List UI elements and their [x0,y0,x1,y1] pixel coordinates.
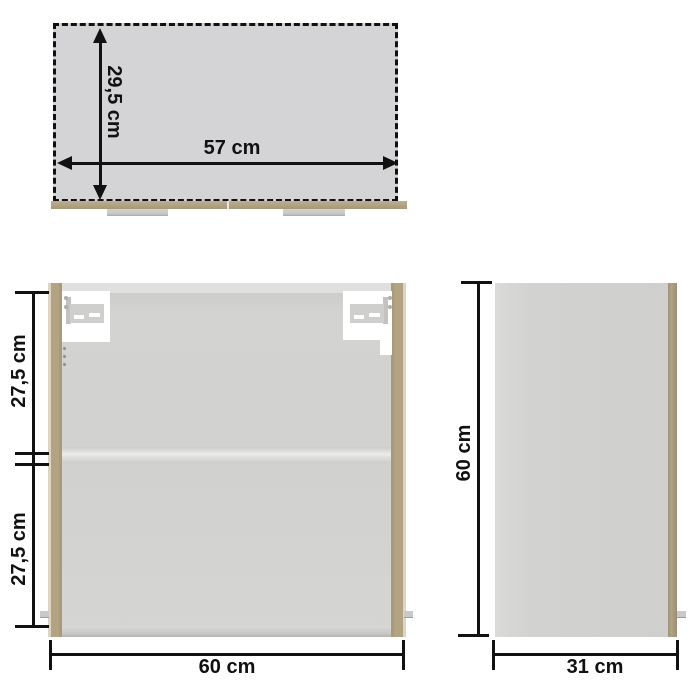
width-arrow-line [69,162,385,165]
dim-tick [676,640,679,670]
front-top-edge [62,283,391,293]
shelf-pin-hole [63,355,66,358]
hinge-cutout-right-notch [380,340,392,355]
mount-peg-side [677,611,686,618]
dim-tick [15,291,49,294]
front-width-label: 60 cm [181,657,273,677]
screw-icon [64,305,68,309]
hinge-slot [369,313,380,317]
front-shelf [62,447,391,463]
depth-arrow-down-head [93,185,107,200]
screw-icon [388,296,392,300]
front-bottom-panel [62,626,391,637]
side-panel-front-edge [668,283,677,637]
dim-tick [15,452,49,455]
screw-icon [64,296,68,300]
top-view-front-edge-gap [227,201,229,209]
top-view-front-edge [51,201,407,209]
shelf-pin-hole [63,363,66,366]
diagram-canvas: 29,5 cm 57 cm [0,0,700,700]
mount-peg-right [404,611,413,618]
dim-tick [15,463,49,466]
dim-tick [458,634,489,637]
front-side-panel-right [391,283,406,637]
hinge-slot [74,315,84,319]
hinge-slot [354,315,364,319]
side-height-dim-line [477,283,480,637]
dim-tick [402,640,405,670]
front-upper-section-label: 27,5 cm [9,325,29,417]
shelf-pin-hole [63,347,66,350]
width-arrow-right-head [383,156,398,170]
mount-peg-left [40,611,49,618]
screw-icon [388,305,392,309]
mounting-rail-left [107,209,168,216]
dim-tick [15,625,49,628]
mounting-rail-right [283,209,345,216]
top-width-label: 57 cm [186,138,278,158]
front-side-panel-left [48,283,62,637]
side-panel [495,283,677,637]
top-depth-label: 29,5 cm [104,56,124,148]
side-height-label: 60 cm [454,407,474,499]
hinge-slot [89,313,100,317]
front-height-dim-line [32,293,35,627]
side-depth-label: 31 cm [549,657,641,677]
front-lower-section-label: 27,5 cm [9,503,29,595]
